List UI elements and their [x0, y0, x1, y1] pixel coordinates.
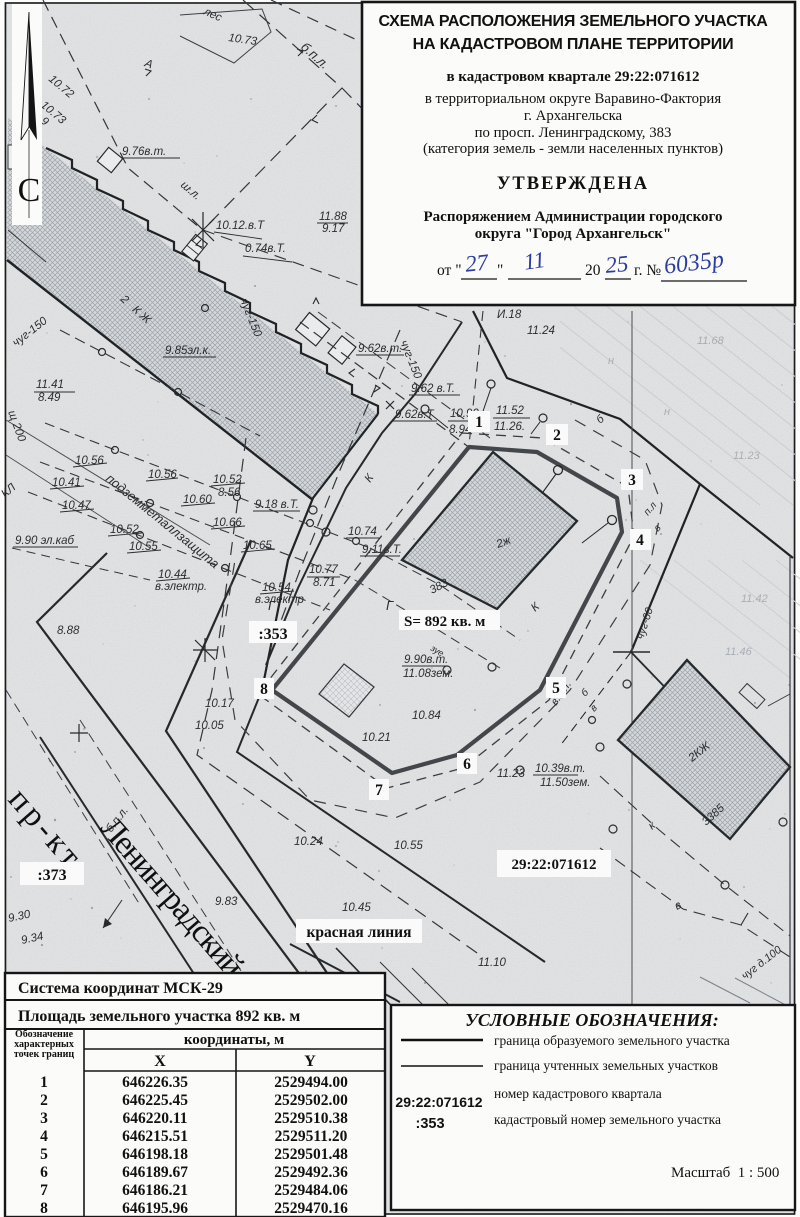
svg-text:X: X	[154, 1053, 166, 1070]
svg-text:Система координат МСК-29: Система координат МСК-29	[18, 980, 223, 997]
svg-text:по просп. Ленинградскому, 383: по просп. Ленинградскому, 383	[475, 125, 672, 141]
svg-text:10.24: 10.24	[294, 836, 323, 848]
svg-text:8.88: 8.88	[57, 625, 80, 637]
svg-text:11.41: 11.41	[36, 379, 64, 391]
svg-text:9.18 в.Т.: 9.18 в.Т.	[255, 499, 299, 511]
svg-text:точек границ: точек границ	[14, 1049, 74, 1060]
svg-text:3: 3	[40, 1110, 48, 1127]
svg-text:9.62в.т.: 9.62в.т.	[358, 343, 402, 355]
svg-text:н: н	[664, 406, 670, 418]
svg-text:11.23: 11.23	[497, 768, 526, 780]
svg-text:4: 4	[40, 1128, 48, 1145]
svg-text:7: 7	[40, 1182, 48, 1199]
svg-text::353: :353	[258, 626, 287, 643]
svg-text:646198.18: 646198.18	[122, 1146, 188, 1163]
svg-text:1: 1	[40, 1074, 48, 1091]
svg-text:20: 20	[585, 262, 601, 279]
svg-text:": "	[497, 262, 503, 279]
svg-text:9.76в.т.: 9.76в.т.	[122, 146, 166, 158]
svg-text:9.62 в.Т.: 9.62 в.Т.	[411, 383, 455, 395]
svg-text:С: С	[18, 172, 41, 209]
svg-text:в кадастровом квартале 29:22:0: в кадастровом квартале 29:22:071612	[446, 69, 699, 85]
svg-text:11.23: 11.23	[733, 450, 761, 462]
svg-text:н: н	[608, 355, 614, 367]
svg-text:10.55: 10.55	[394, 840, 423, 852]
svg-text:10.45: 10.45	[342, 902, 371, 914]
svg-text:11.68: 11.68	[697, 335, 725, 347]
svg-text:11.26.: 11.26.	[494, 421, 525, 433]
svg-text:8.56: 8.56	[218, 487, 241, 499]
svg-text:красная линия: красная линия	[307, 924, 412, 941]
svg-text:646215.51: 646215.51	[122, 1128, 188, 1145]
svg-text:646226.35: 646226.35	[122, 1074, 188, 1091]
svg-text:Площадь земельного участка 892: Площадь земельного участка 892 кв. м	[18, 1008, 300, 1025]
svg-text:УТВЕРЖДЕНА: УТВЕРЖДЕНА	[497, 174, 649, 194]
svg-text:646189.67: 646189.67	[122, 1164, 188, 1181]
svg-text:11.24: 11.24	[527, 325, 555, 337]
svg-text:4: 4	[636, 532, 644, 549]
svg-text:УСЛОВНЫЕ ОБОЗНАЧЕНИЯ:: УСЛОВНЫЕ ОБОЗНАЧЕНИЯ:	[465, 1010, 718, 1030]
svg-text:10.12.в.Т: 10.12.в.Т	[216, 220, 265, 232]
svg-text:СХЕМА РАСПОЛОЖЕНИЯ ЗЕМЕЛЬНОГО: СХЕМА РАСПОЛОЖЕНИЯ ЗЕМЕЛЬНОГО УЧАСТКА	[378, 13, 768, 30]
svg-text:2529492.36: 2529492.36	[274, 1164, 348, 1181]
svg-text:Г: Г	[386, 598, 394, 613]
svg-text:11.50зем.: 11.50зем.	[540, 777, 591, 789]
svg-text:Масштаб 1 : 500: Масштаб 1 : 500	[671, 1165, 779, 1181]
svg-text:10.39в.т.: 10.39в.т.	[535, 763, 586, 775]
svg-text:9.90 эл.каб: 9.90 эл.каб	[15, 535, 74, 547]
svg-text:Y: Y	[304, 1053, 316, 1070]
svg-text:29:22:071612: 29:22:071612	[512, 857, 597, 873]
svg-text:2529484.06: 2529484.06	[274, 1182, 348, 1199]
svg-text:5: 5	[40, 1146, 48, 1163]
svg-text:координаты, м: координаты, м	[184, 1032, 284, 1048]
svg-text:9.11в.Т.: 9.11в.Т.	[362, 544, 402, 556]
svg-text:2529470.16: 2529470.16	[274, 1200, 348, 1217]
svg-text:0.74в.Т.: 0.74в.Т.	[245, 243, 286, 255]
svg-text:646195.96: 646195.96	[122, 1200, 188, 1217]
svg-text:Распоряжением Администрации го: Распоряжением Администрации городского	[424, 209, 723, 225]
svg-text:в.электр: в.электр	[255, 594, 304, 606]
svg-text:от ": от "	[437, 262, 462, 279]
svg-text:2529501.48: 2529501.48	[274, 1146, 348, 1163]
svg-text:11.08зем.: 11.08зем.	[403, 668, 454, 680]
svg-text:9.83: 9.83	[215, 896, 238, 908]
svg-text:Г: Г	[268, 598, 276, 613]
svg-text:11.42: 11.42	[741, 593, 768, 605]
svg-text:9.62в.Т: 9.62в.Т	[395, 409, 435, 421]
svg-text:10.05: 10.05	[195, 720, 224, 732]
svg-text:10.74: 10.74	[348, 526, 377, 538]
svg-text:10.21: 10.21	[362, 732, 391, 744]
svg-text:11.88: 11.88	[319, 211, 348, 223]
svg-text::353: :353	[415, 1116, 444, 1132]
svg-text:11.46: 11.46	[725, 646, 753, 658]
svg-text:(категория земель - земли насе: (категория земель - земли населенных пун…	[423, 141, 723, 157]
svg-text:10.84: 10.84	[412, 710, 441, 722]
svg-text:11.52: 11.52	[496, 405, 525, 417]
svg-text:номер кадастрового квартала: номер кадастрового квартала	[494, 1086, 662, 1101]
svg-text:25: 25	[604, 251, 629, 278]
svg-text:10.17: 10.17	[205, 698, 234, 710]
svg-text:1: 1	[475, 414, 483, 431]
svg-text:в территориальном округе Варав: в территориальном округе Варавино-Фактор…	[425, 91, 721, 107]
svg-text:7: 7	[375, 782, 383, 799]
svg-text:8.71: 8.71	[313, 577, 335, 589]
svg-text:НА КАДАСТРОВОМ ПЛАНЕ ТЕРРИТОРИ: НА КАДАСТРОВОМ ПЛАНЕ ТЕРРИТОРИИ	[413, 36, 734, 53]
svg-text:2529511.20: 2529511.20	[275, 1128, 348, 1145]
svg-text:в.электр.: в.электр.	[155, 581, 207, 593]
svg-text:г. Архангельска: г. Архангельска	[524, 108, 623, 124]
svg-text:5: 5	[552, 680, 560, 697]
svg-text:2529494.00: 2529494.00	[274, 1074, 348, 1091]
svg-text:округа "Город Архангельск": округа "Город Архангельск"	[475, 226, 672, 242]
svg-text:646225.45: 646225.45	[122, 1092, 188, 1109]
svg-text:10.77: 10.77	[309, 564, 338, 576]
svg-text:646186.21: 646186.21	[122, 1182, 188, 1199]
svg-text:2529502.00: 2529502.00	[274, 1092, 348, 1109]
svg-text:2529510.38: 2529510.38	[274, 1110, 348, 1127]
svg-text:г. №: г. №	[634, 262, 661, 279]
svg-text:11: 11	[522, 247, 547, 275]
svg-text:8: 8	[40, 1200, 48, 1217]
svg-text:646220.11: 646220.11	[122, 1110, 187, 1127]
svg-text:S= 892 кв. м: S= 892 кв. м	[404, 614, 485, 630]
svg-text:8.49: 8.49	[38, 392, 61, 404]
svg-text:кадастровый номер земельного у: кадастровый номер земельного участка	[494, 1112, 721, 1127]
svg-text:граница образуемого земельного: граница образуемого земельного участка	[494, 1033, 730, 1048]
svg-text:2: 2	[553, 427, 561, 444]
svg-text:И.18: И.18	[497, 309, 522, 321]
svg-text:2: 2	[40, 1092, 48, 1109]
svg-text:27: 27	[464, 249, 491, 276]
svg-text:11.10: 11.10	[478, 957, 507, 969]
svg-text:3: 3	[628, 472, 636, 489]
svg-text:6: 6	[40, 1164, 48, 1181]
svg-text:граница учтенных земельных уча: граница учтенных земельных участков	[494, 1058, 718, 1073]
svg-text::373: :373	[37, 867, 66, 884]
svg-text:29:22:071612: 29:22:071612	[395, 1094, 482, 1110]
svg-text:9.85эл.к.: 9.85эл.к.	[165, 345, 211, 357]
svg-text:6: 6	[463, 756, 471, 773]
svg-text:9.17: 9.17	[322, 223, 345, 235]
svg-text:8: 8	[260, 681, 268, 698]
